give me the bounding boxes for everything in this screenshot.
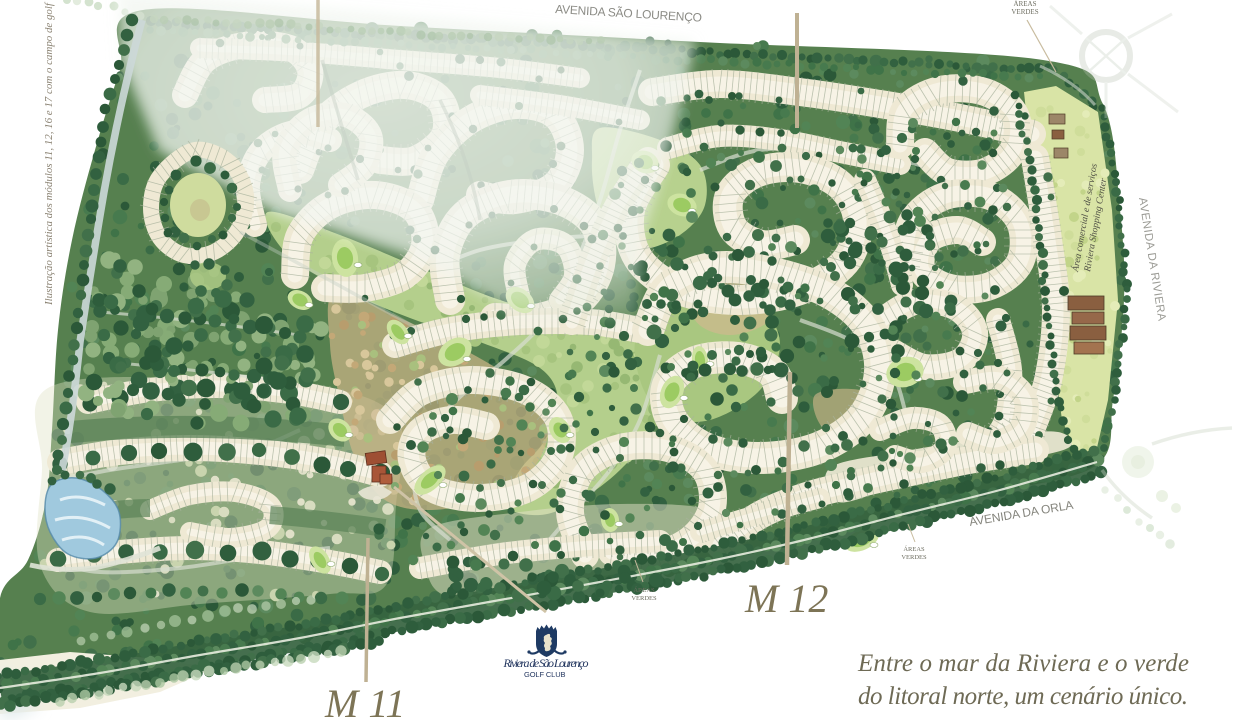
svg-text:VERDES: VERDES xyxy=(901,554,927,561)
svg-text:Riviera de São Lourenço: Riviera de São Lourenço xyxy=(503,656,589,670)
svg-text:Entre o mar da Riviera e o ver: Entre o mar da Riviera e o verde xyxy=(857,650,1189,677)
svg-text:ÁREAS: ÁREAS xyxy=(633,586,655,594)
svg-text:M 12: M 12 xyxy=(744,576,828,621)
svg-text:GOLF CLUB: GOLF CLUB xyxy=(524,670,568,679)
svg-text:do litoral norte, um cenário ú: do litoral norte, um cenário único. xyxy=(858,683,1188,710)
svg-text:VERDES: VERDES xyxy=(1011,8,1038,16)
svg-text:ÁREAS: ÁREAS xyxy=(1014,0,1037,8)
svg-text:Ilustração artística dos módul: Ilustração artística dos módulos 11, 12,… xyxy=(43,1,55,306)
svg-text:M 11: M 11 xyxy=(324,681,405,720)
svg-text:VERDES: VERDES xyxy=(631,595,657,602)
svg-text:ÁREAS: ÁREAS xyxy=(903,545,925,553)
